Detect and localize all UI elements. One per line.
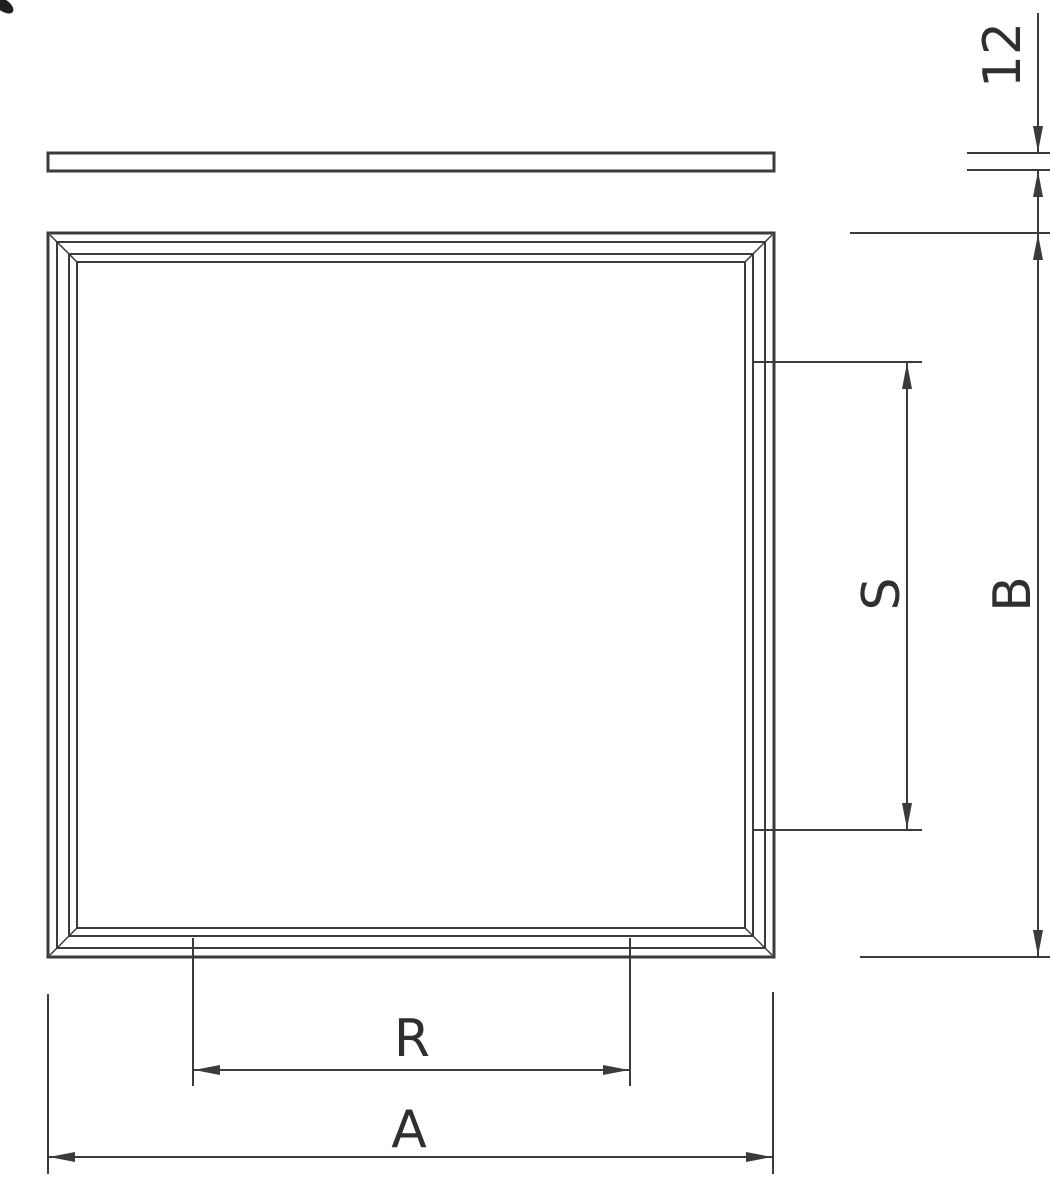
arrowhead-left-icon [49, 1152, 75, 1162]
arrowhead-right-icon [746, 1152, 772, 1162]
label-overall-height: B [983, 576, 1043, 612]
panel-side-view [48, 153, 774, 171]
dimension-recess-width-R: R [193, 938, 630, 1086]
panel-dimension-drawing: 12 B S R [0, 0, 1050, 1200]
arrowhead-right-icon [603, 1065, 629, 1075]
label-recess-width: R [394, 1009, 430, 1069]
dimension-thickness-12: 12 [967, 13, 1050, 197]
panel-front-view [48, 233, 774, 957]
label-thickness: 12 [973, 22, 1033, 88]
arrowhead-down-icon [1033, 126, 1043, 152]
arrowhead-down-icon [1033, 930, 1043, 956]
dimension-overall-height-B: B [850, 171, 1050, 957]
frame-outer-edge [48, 233, 774, 957]
label-suspension-spacing: S [852, 577, 912, 610]
technical-drawing-page: 12 B S R [0, 0, 1050, 1200]
side-view-bar [48, 153, 774, 171]
arrowhead-down-icon [902, 803, 912, 829]
arrowhead-up-icon [1033, 234, 1043, 260]
dimension-suspension-spacing-S: S [753, 362, 922, 830]
arrowhead-left-icon [194, 1065, 220, 1075]
label-overall-width: A [391, 1100, 427, 1160]
corner-ink-artifact [0, 0, 16, 17]
arrowhead-up-icon [902, 363, 912, 389]
